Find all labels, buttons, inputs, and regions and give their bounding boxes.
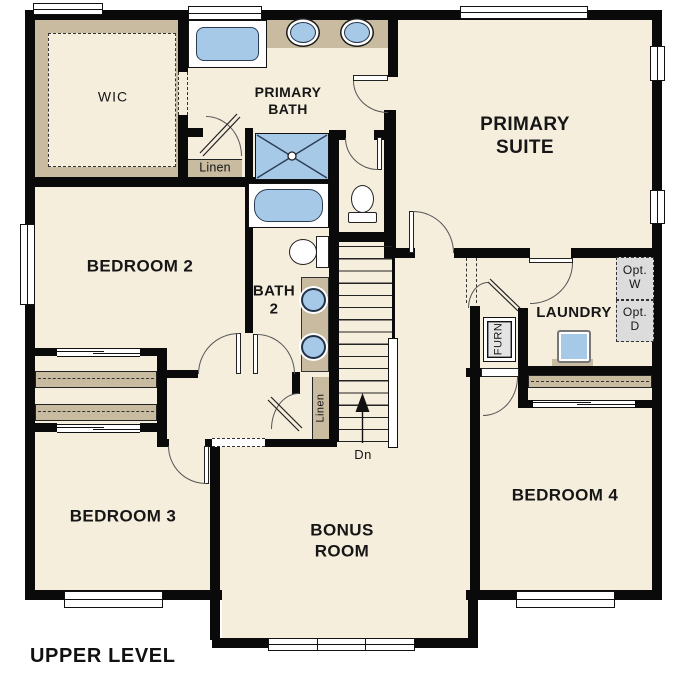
bedroom4-closet-shelf (528, 375, 652, 388)
bath2-toilet-bowl (289, 239, 317, 265)
label-linen-upper: Linen (199, 160, 231, 175)
bedroom2-closet-shelf (35, 371, 157, 388)
wall-wic-right-upper (178, 20, 188, 72)
floor-bonus-extension (222, 590, 468, 638)
wall-closet-bottom-b (140, 423, 167, 432)
window-bedroom4-bottom (516, 591, 615, 608)
label-opt-dryer: Opt. D (623, 306, 647, 334)
bedroom3-closet-slider (57, 424, 140, 433)
primary-bathtub-basin (196, 27, 259, 61)
wall-bonus-right (468, 590, 478, 646)
window-suite-top (460, 6, 588, 19)
window-bedroom2-left (20, 224, 35, 305)
window-wic-top (33, 3, 103, 15)
shower (255, 133, 329, 180)
primary-sink-1 (290, 22, 316, 43)
floor-plan: WIC PRIMARY BATH PRIMARY SUITE BEDROOM 2… (0, 0, 687, 687)
bedroom2-closet-slider (57, 348, 140, 357)
window-bedroom3-bottom (64, 591, 163, 608)
room-label-bonus-room: BONUS ROOM (310, 520, 373, 561)
room-label-bedroom-2: BEDROOM 2 (87, 257, 194, 278)
window-suite-right-1 (650, 46, 665, 81)
stair-treads (339, 246, 392, 442)
wall-suite-bottom-mid (454, 248, 530, 258)
wall-stairs-right-thin (392, 242, 395, 340)
wall-furn-right (518, 308, 528, 408)
room-label-bath-2: BATH 2 (253, 283, 295, 320)
wall-outer-left (25, 10, 35, 600)
wall-closet-top-a (25, 348, 57, 356)
window-divider (365, 639, 366, 650)
window-divider (317, 639, 318, 650)
room-label-primary-suite: PRIMARY SUITE (480, 113, 570, 159)
wall-bedroom3-right (210, 443, 220, 640)
window-primarybath-top (188, 6, 262, 20)
wall-closet-top-b (140, 348, 167, 356)
wall-laundry-bottom (518, 366, 662, 375)
wall-wic-right-lower (178, 115, 188, 181)
wall-bedroom2-bottom-stub (157, 370, 198, 378)
room-label-bedroom-4: BEDROOM 4 (512, 486, 619, 507)
bedroom3-closet-shelf (35, 404, 157, 421)
bath2-sink-1 (301, 288, 326, 312)
window-suite-right-2 (650, 190, 665, 224)
room-label-laundry: LAUNDRY (536, 304, 612, 322)
stair-rail (388, 338, 398, 448)
wc-toilet-base (348, 212, 377, 223)
bath2-toilet-tank (316, 236, 329, 268)
primary-sink-2 (344, 22, 370, 43)
wall-suite-left-upper (388, 20, 398, 77)
bath2-sink-2 (301, 335, 326, 359)
wall-bedroom4-left (470, 306, 480, 590)
wic-opening (178, 72, 188, 115)
room-label-wic: WIC (98, 88, 128, 105)
wall-bed4door-left (466, 368, 482, 377)
room-label-bedroom-3: BEDROOM 3 (70, 507, 177, 528)
bath2-tub-basin (254, 189, 323, 222)
wall-bathhall-stub (188, 128, 203, 137)
wall-stairs-left (329, 140, 339, 442)
bonus-opening (212, 438, 265, 447)
label-stairs-dn: Dn (354, 447, 371, 463)
room-label-primary-bath: PRIMARY BATH (255, 84, 322, 118)
wall-closet-bottom-a (25, 423, 57, 432)
bedroom4-door-leaf (481, 368, 519, 377)
label-furnace: FURN (492, 323, 505, 356)
label-opt-washer: Opt. W (623, 264, 647, 292)
wc-toilet-bowl (351, 185, 374, 213)
wall-wc-stub-left (329, 130, 346, 140)
window-bonus-bottom (268, 638, 415, 651)
wall-wc-bottom (332, 232, 392, 242)
page-title: UPPER LEVEL (30, 645, 176, 668)
bedroom4-closet-slider (533, 400, 635, 408)
wall-hallbottom-c (265, 439, 337, 447)
wall-bath2-left (245, 128, 253, 333)
laundry-sink (557, 330, 591, 363)
wall-linen-stub (292, 372, 300, 394)
label-linen-hall: Linen (314, 394, 327, 423)
